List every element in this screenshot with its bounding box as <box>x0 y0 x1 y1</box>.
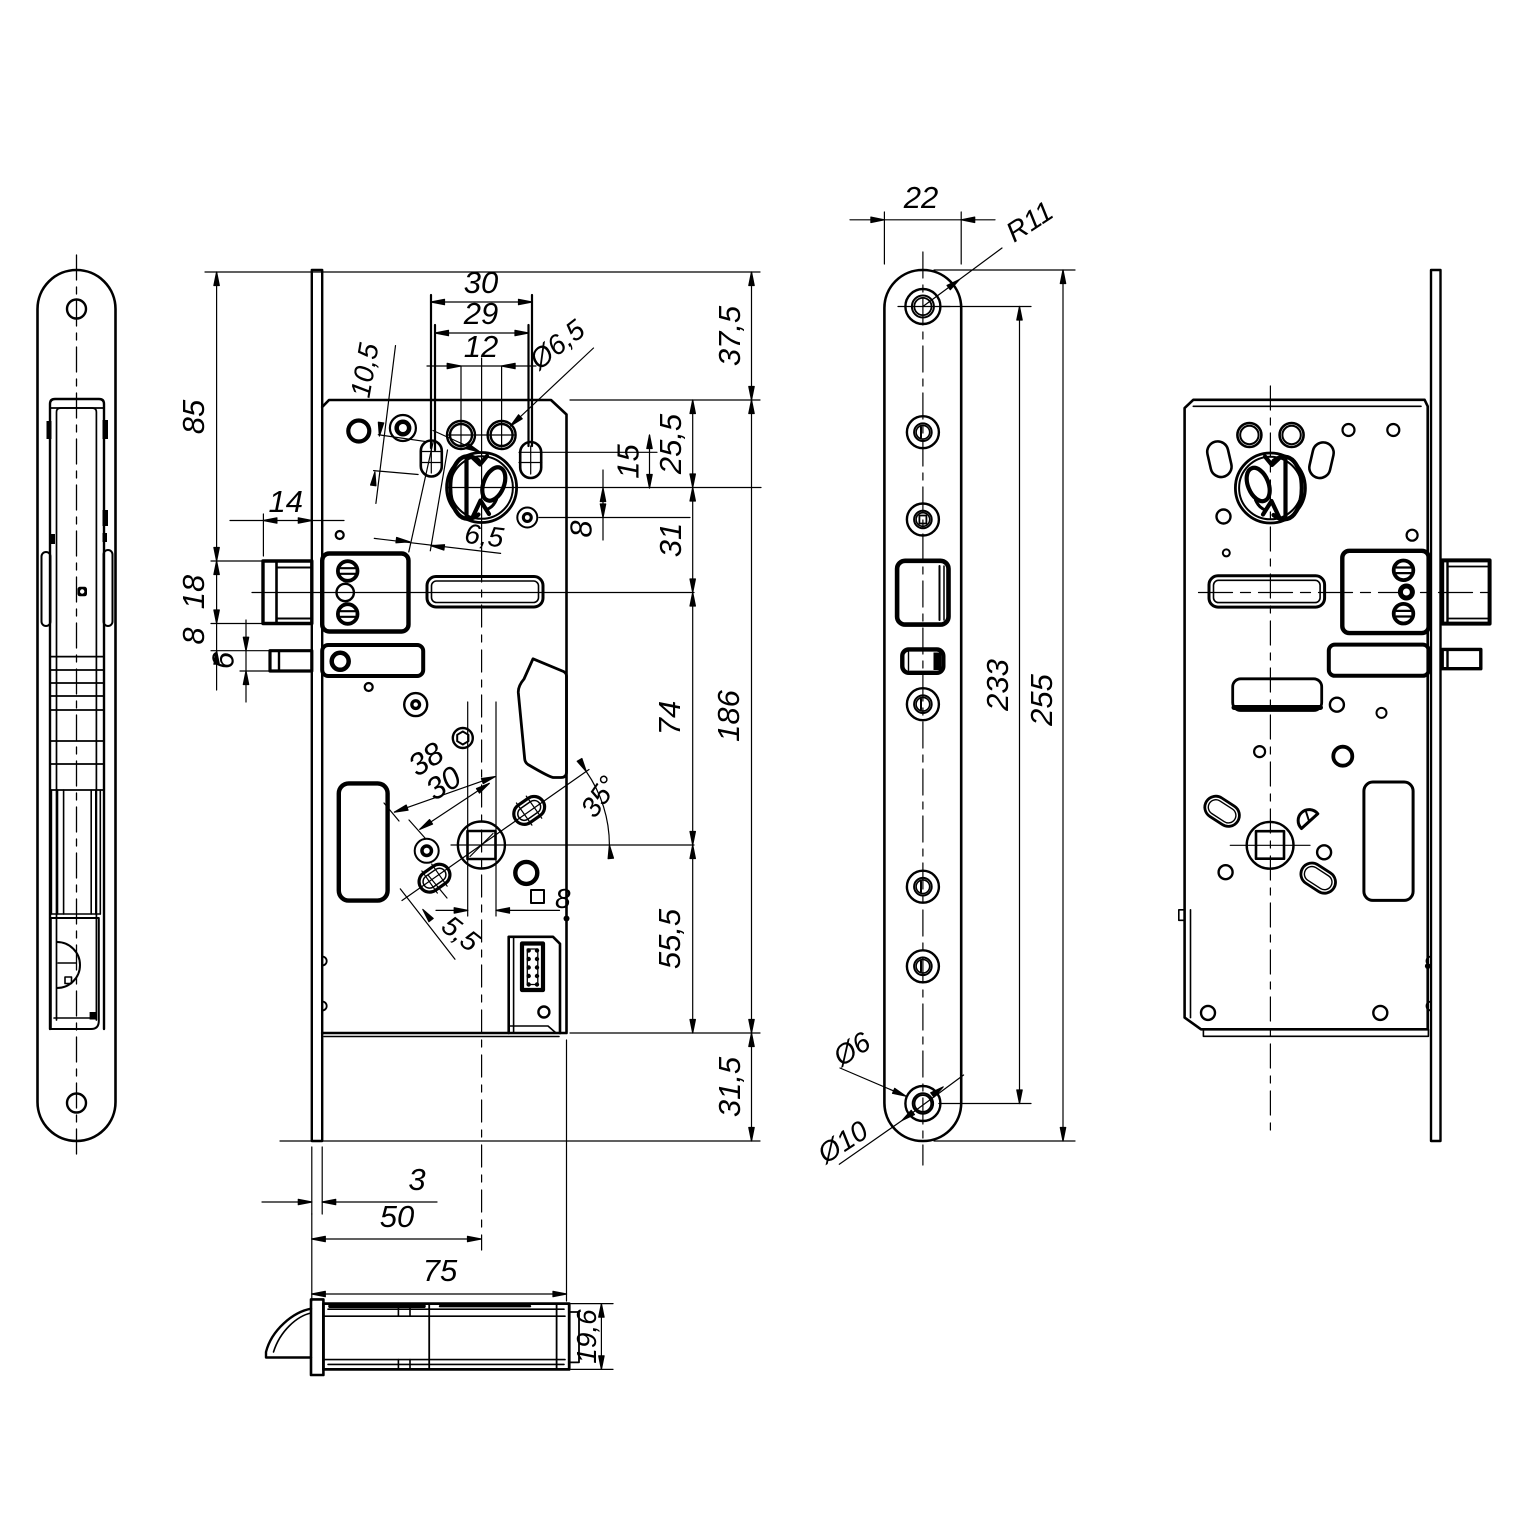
svg-text:75: 75 <box>423 1253 458 1288</box>
svg-text:30: 30 <box>464 265 498 300</box>
svg-text:12: 12 <box>464 329 498 364</box>
svg-text:8: 8 <box>176 627 211 645</box>
svg-text:37,5: 37,5 <box>712 305 747 366</box>
svg-text:74: 74 <box>652 701 687 735</box>
svg-text:29: 29 <box>463 296 498 331</box>
svg-text:14: 14 <box>269 484 303 519</box>
svg-text:25,5: 25,5 <box>653 413 688 475</box>
svg-text:19,6: 19,6 <box>571 1309 602 1364</box>
svg-text:50: 50 <box>380 1199 414 1234</box>
svg-text:3: 3 <box>408 1162 425 1197</box>
svg-text:186: 186 <box>711 689 746 741</box>
svg-text:233: 233 <box>980 659 1015 712</box>
svg-text:31,5: 31,5 <box>712 1056 747 1117</box>
svg-text:8: 8 <box>555 883 571 914</box>
svg-text:18: 18 <box>176 574 211 609</box>
svg-text:255: 255 <box>1024 673 1059 726</box>
svg-text:6,5: 6,5 <box>463 518 506 554</box>
svg-text:8: 8 <box>564 520 599 538</box>
svg-text:55,5: 55,5 <box>652 908 687 969</box>
svg-text:31: 31 <box>653 523 688 557</box>
svg-text:22: 22 <box>903 180 938 215</box>
svg-text:15: 15 <box>611 444 646 479</box>
svg-text:6: 6 <box>206 651 241 669</box>
svg-text:85: 85 <box>176 399 211 434</box>
